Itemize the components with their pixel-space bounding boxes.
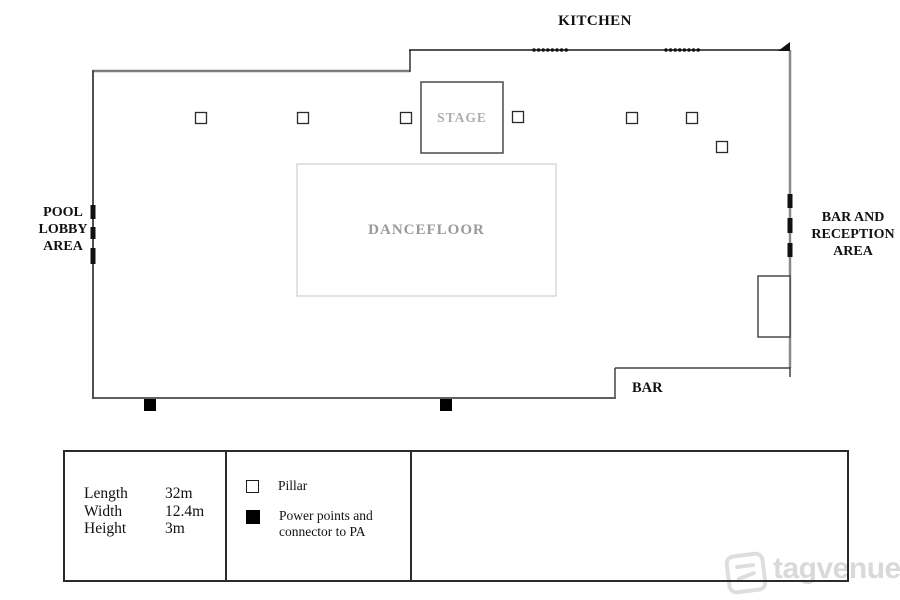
pillar-marker bbox=[627, 113, 638, 124]
power-points-line-1: Power points and bbox=[279, 508, 373, 523]
dimensions-cell: Length 32m Width 12.4m Height 3m bbox=[65, 452, 227, 580]
empty-cell bbox=[412, 452, 847, 580]
dimension-row-length: Length 32m bbox=[84, 485, 225, 503]
bar-reception-line-3: AREA bbox=[806, 243, 900, 260]
wall-dot bbox=[555, 48, 559, 52]
pool-lobby-area-label: POOL LOBBY AREA bbox=[27, 204, 99, 255]
pillar-marker bbox=[298, 113, 309, 124]
stage-label: STAGE bbox=[421, 82, 503, 153]
width-label: Width bbox=[84, 503, 165, 521]
height-value: 3m bbox=[165, 520, 185, 538]
pillar-marker bbox=[401, 113, 412, 124]
power-point-square-icon bbox=[246, 510, 260, 524]
wall-dot bbox=[696, 48, 700, 52]
wall-dot bbox=[678, 48, 682, 52]
power-points-line-2: connector to PA bbox=[279, 524, 366, 539]
wall-dot bbox=[564, 48, 568, 52]
pool-lobby-line-1: POOL bbox=[27, 204, 99, 221]
pillar-marker bbox=[196, 113, 207, 124]
bar-reception-line-1: BAR AND bbox=[806, 209, 900, 226]
power-points-legend-label: Power points and connector to PA bbox=[279, 508, 373, 541]
power-point-marker bbox=[440, 399, 452, 411]
pool-lobby-line-2: LOBBY bbox=[27, 221, 99, 238]
symbols-cell: Pillar Power points and connector to PA bbox=[227, 452, 412, 580]
bar-reception-line-2: RECEPTION bbox=[806, 226, 900, 243]
length-label: Length bbox=[84, 485, 165, 503]
width-value: 12.4m bbox=[165, 503, 204, 521]
wall-dot bbox=[664, 48, 668, 52]
legend-table: Length 32m Width 12.4m Height 3m Pillar … bbox=[63, 450, 849, 582]
bar-reception-area-label: BAR AND RECEPTION AREA bbox=[806, 209, 900, 260]
wall-dot bbox=[683, 48, 687, 52]
pillar-square-icon bbox=[246, 480, 259, 493]
height-label: Height bbox=[84, 520, 165, 538]
power-point-marker bbox=[144, 399, 156, 411]
wall-dot bbox=[537, 48, 541, 52]
bar-counter-outline bbox=[758, 276, 790, 337]
dimension-row-height: Height 3m bbox=[84, 520, 225, 538]
kitchen-area-label: KITCHEN bbox=[540, 13, 650, 30]
wall-dot bbox=[546, 48, 550, 52]
wall-dot bbox=[541, 48, 545, 52]
wall-dot bbox=[560, 48, 564, 52]
pillar-marker bbox=[687, 113, 698, 124]
floor-plan: KITCHEN POOL LOBBY AREA BAR AND RECEPTIO… bbox=[0, 0, 900, 440]
wall-dot bbox=[687, 48, 691, 52]
bar-label: BAR bbox=[632, 380, 663, 397]
legend-item-pillar: Pillar bbox=[246, 478, 410, 495]
wall-dot bbox=[551, 48, 555, 52]
dimension-row-width: Width 12.4m bbox=[84, 503, 225, 521]
dancefloor-label: DANCEFLOOR bbox=[297, 164, 556, 296]
pillar-marker bbox=[513, 112, 524, 123]
wall-dot bbox=[532, 48, 536, 52]
length-value: 32m bbox=[165, 485, 193, 503]
pillar-legend-label: Pillar bbox=[278, 478, 307, 495]
wall-dot bbox=[669, 48, 673, 52]
wall-dot bbox=[673, 48, 677, 52]
wall-dot bbox=[692, 48, 696, 52]
pillar-marker bbox=[717, 142, 728, 153]
pool-lobby-line-3: AREA bbox=[27, 238, 99, 255]
legend-item-power-points: Power points and connector to PA bbox=[246, 508, 410, 541]
floor-plan-page: { "plan": { "labels": { "kitchen": "KITC… bbox=[0, 0, 900, 600]
